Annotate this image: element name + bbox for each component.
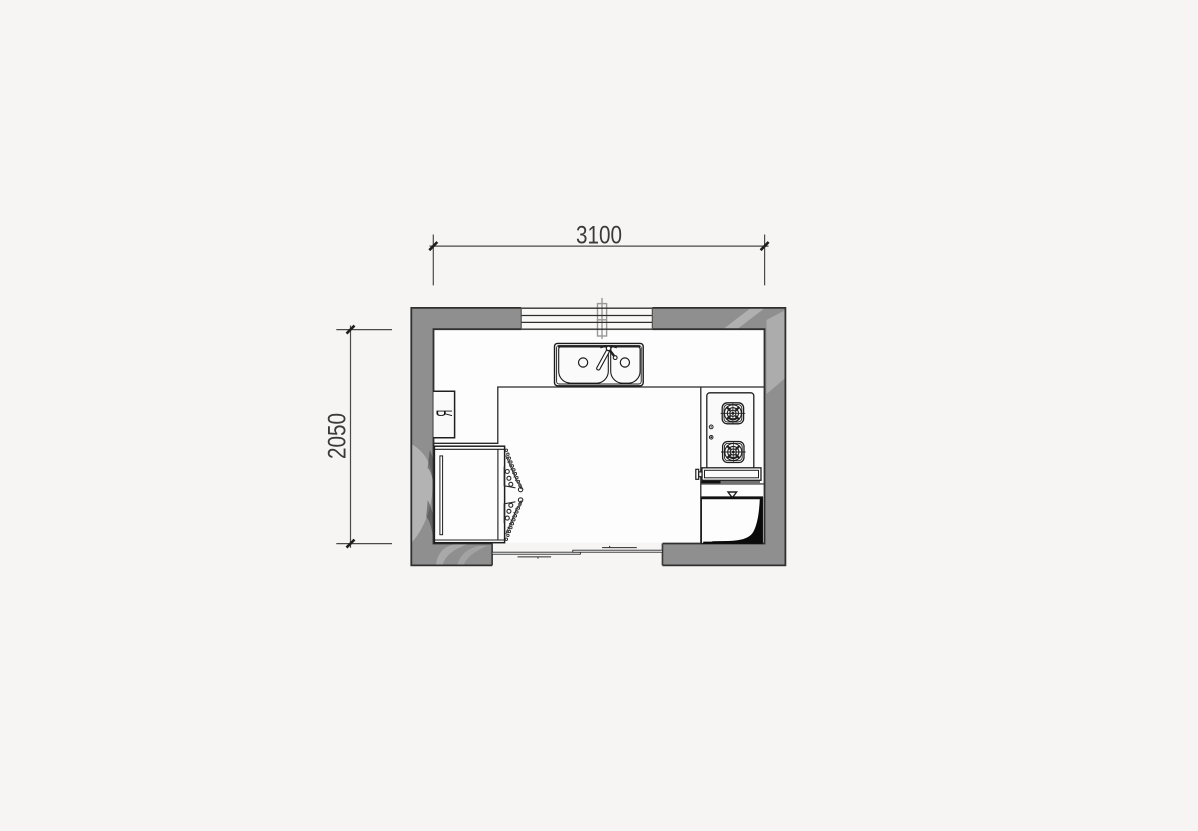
svg-text:3100: 3100 (576, 222, 622, 250)
svg-text:Я: Я (433, 410, 458, 417)
svg-text:2050: 2050 (324, 413, 352, 459)
